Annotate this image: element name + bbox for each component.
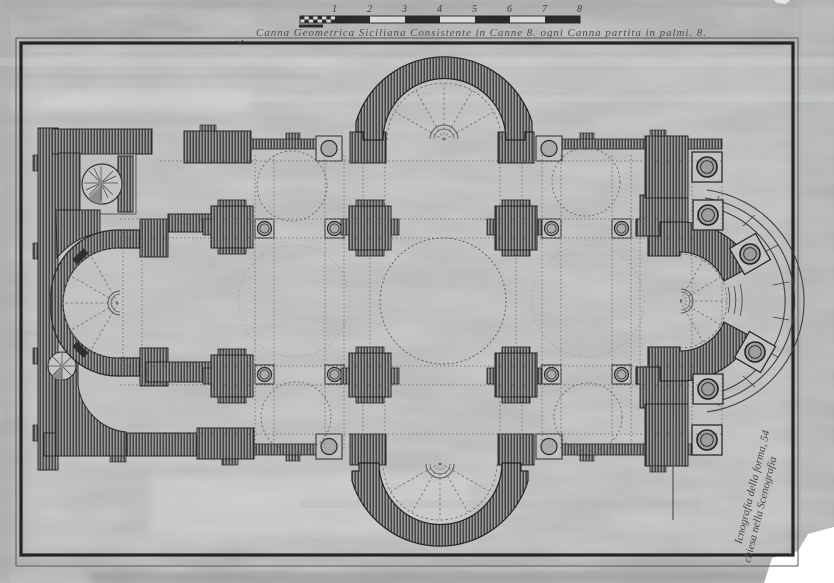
svg-text:Canna Geometrica Siciliana Con: Canna Geometrica Siciliana Consistente i… bbox=[256, 27, 706, 39]
svg-text:5: 5 bbox=[472, 4, 477, 15]
svg-text:2: 2 bbox=[367, 4, 372, 15]
svg-text:8: 8 bbox=[577, 4, 582, 15]
svg-text:4: 4 bbox=[437, 4, 442, 15]
svg-text:6: 6 bbox=[507, 4, 512, 15]
svg-text:3: 3 bbox=[401, 4, 407, 15]
svg-text:1: 1 bbox=[332, 4, 337, 15]
